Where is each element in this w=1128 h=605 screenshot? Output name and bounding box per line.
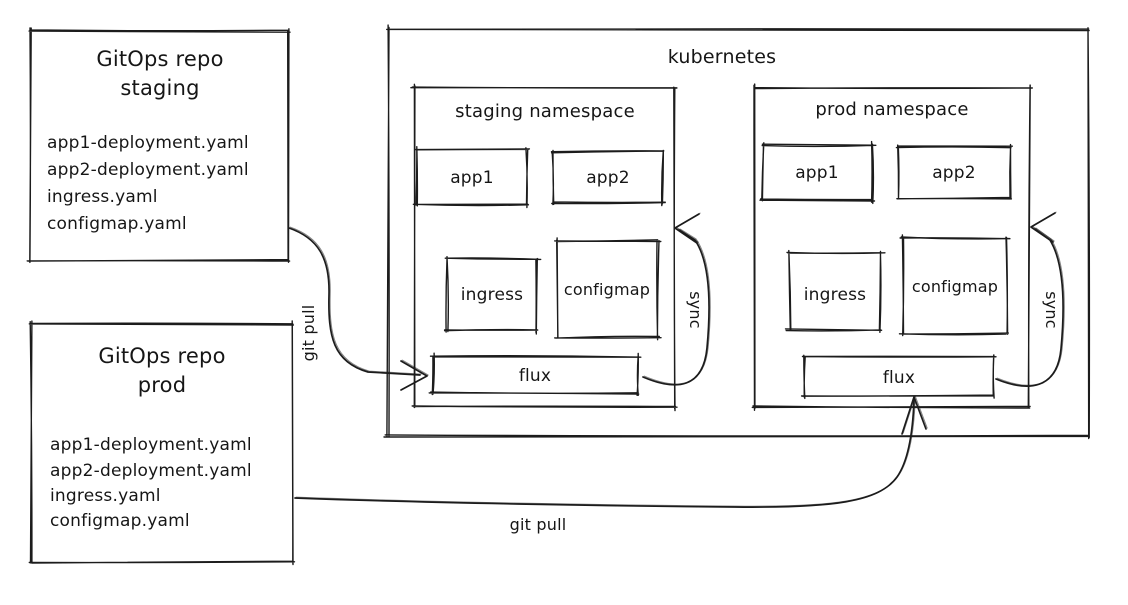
node-staging-ingress-label-0: ingress (461, 285, 523, 305)
gitops-diagram-canvas: GitOps repostagingapp1-deployment.yamlap… (0, 0, 1128, 605)
node-gitops-repo-staging-label-1: staging (120, 76, 199, 100)
node-prod-namespace-label-0: prod namespace (815, 99, 968, 120)
node-gitops-repo-prod-label-2: app1-deployment.yaml (50, 435, 252, 455)
node-prod-ingress-label-0: ingress (804, 285, 866, 305)
node-gitops-repo-prod-label-0: GitOps repo (98, 344, 225, 368)
node-prod-ingress: ingress (786, 251, 885, 333)
diagram-svg: GitOps repostagingapp1-deployment.yamlap… (0, 0, 1128, 605)
edge-sync-staging: sync (643, 213, 710, 385)
node-prod-app2: app2 (896, 145, 1012, 199)
node-gitops-repo-prod-label-3: app2-deployment.yaml (50, 461, 252, 481)
node-staging-app1-label-0: app1 (450, 168, 494, 188)
node-staging-app2-label-0: app2 (586, 168, 630, 188)
node-staging-configmap-label-0: configmap (564, 280, 650, 299)
node-staging-ingress: ingress (445, 257, 541, 334)
node-prod-namespace-border (752, 84, 1032, 410)
node-gitops-repo-staging-label-4: ingress.yaml (47, 187, 158, 207)
node-staging-app1: app1 (413, 147, 529, 208)
node-prod-app1: app1 (760, 142, 876, 204)
node-gitops-repo-staging-label-5: configmap.yaml (47, 214, 187, 234)
node-gitops-repo-prod: GitOps repoprodapp1-deployment.yamlapp2-… (29, 321, 294, 565)
edge-git-pull-prod-line (295, 400, 914, 507)
node-prod-app1-label-0: app1 (795, 163, 839, 183)
node-prod-flux-label-0: flux (883, 368, 915, 388)
node-kubernetes-label-0: kubernetes (668, 46, 776, 68)
node-staging-configmap: configmap (555, 238, 661, 340)
node-prod-configmap-label-0: configmap (912, 277, 998, 296)
node-gitops-repo-staging-label-0: GitOps repo (96, 47, 223, 71)
edge-git-pull-prod: git pull (295, 396, 927, 534)
edge-git-pull-staging-label: git pull (299, 305, 318, 362)
node-gitops-repo-prod-label-1: prod (138, 373, 186, 397)
edge-sync-staging-label: sync (686, 291, 705, 329)
node-staging-namespace-label-0: staging namespace (455, 101, 635, 122)
node-staging-namespace-border (411, 84, 677, 410)
edge-git-pull-staging: git pull (289, 227, 428, 390)
node-staging-flux: flux (429, 353, 641, 395)
node-prod-app2-label-0: app2 (932, 163, 976, 183)
node-prod-flux: flux (802, 355, 996, 399)
node-gitops-repo-staging-label-2: app1-deployment.yaml (47, 133, 249, 153)
node-gitops-repo-prod-label-5: configmap.yaml (50, 511, 190, 531)
node-staging-flux-label-0: flux (519, 366, 551, 386)
node-prod-configmap: configmap (900, 235, 1010, 336)
node-gitops-repo-staging: GitOps repostagingapp1-deployment.yamlap… (27, 28, 290, 262)
edge-sync-prod-label: sync (1042, 291, 1061, 329)
node-gitops-repo-staging-label-3: app2-deployment.yaml (47, 160, 249, 180)
node-gitops-repo-prod-label-4: ingress.yaml (50, 486, 161, 506)
node-staging-app2: app2 (552, 150, 666, 205)
node-prod-namespace: prod namespace (752, 84, 1032, 410)
node-staging-namespace: staging namespace (411, 84, 677, 410)
edge-git-pull-prod-label: git pull (510, 515, 567, 534)
